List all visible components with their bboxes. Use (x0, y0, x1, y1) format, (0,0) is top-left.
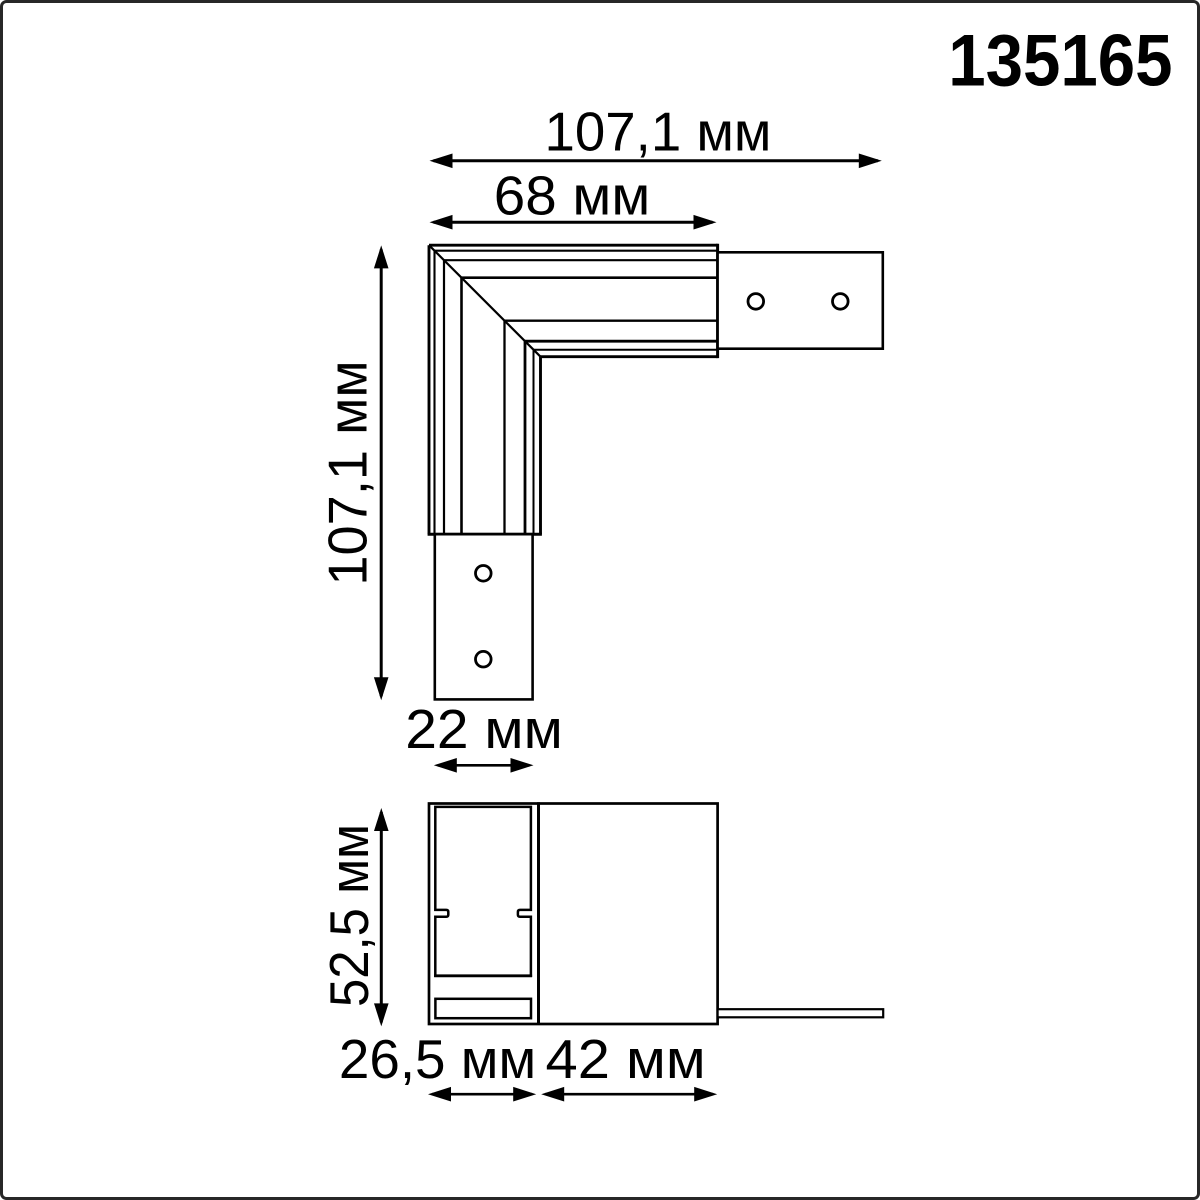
svg-text:68 мм: 68 мм (494, 164, 650, 226)
svg-text:22 мм: 22 мм (405, 698, 563, 760)
svg-text:26,5 мм: 26,5 мм (339, 1028, 536, 1090)
svg-text:107,1 мм: 107,1 мм (545, 100, 772, 162)
svg-text:42 мм: 42 мм (546, 1028, 706, 1089)
svg-text:135165: 135165 (948, 19, 1172, 101)
svg-text:52,5 мм: 52,5 мм (319, 824, 380, 1007)
svg-text:107,1 мм: 107,1 мм (317, 360, 378, 585)
